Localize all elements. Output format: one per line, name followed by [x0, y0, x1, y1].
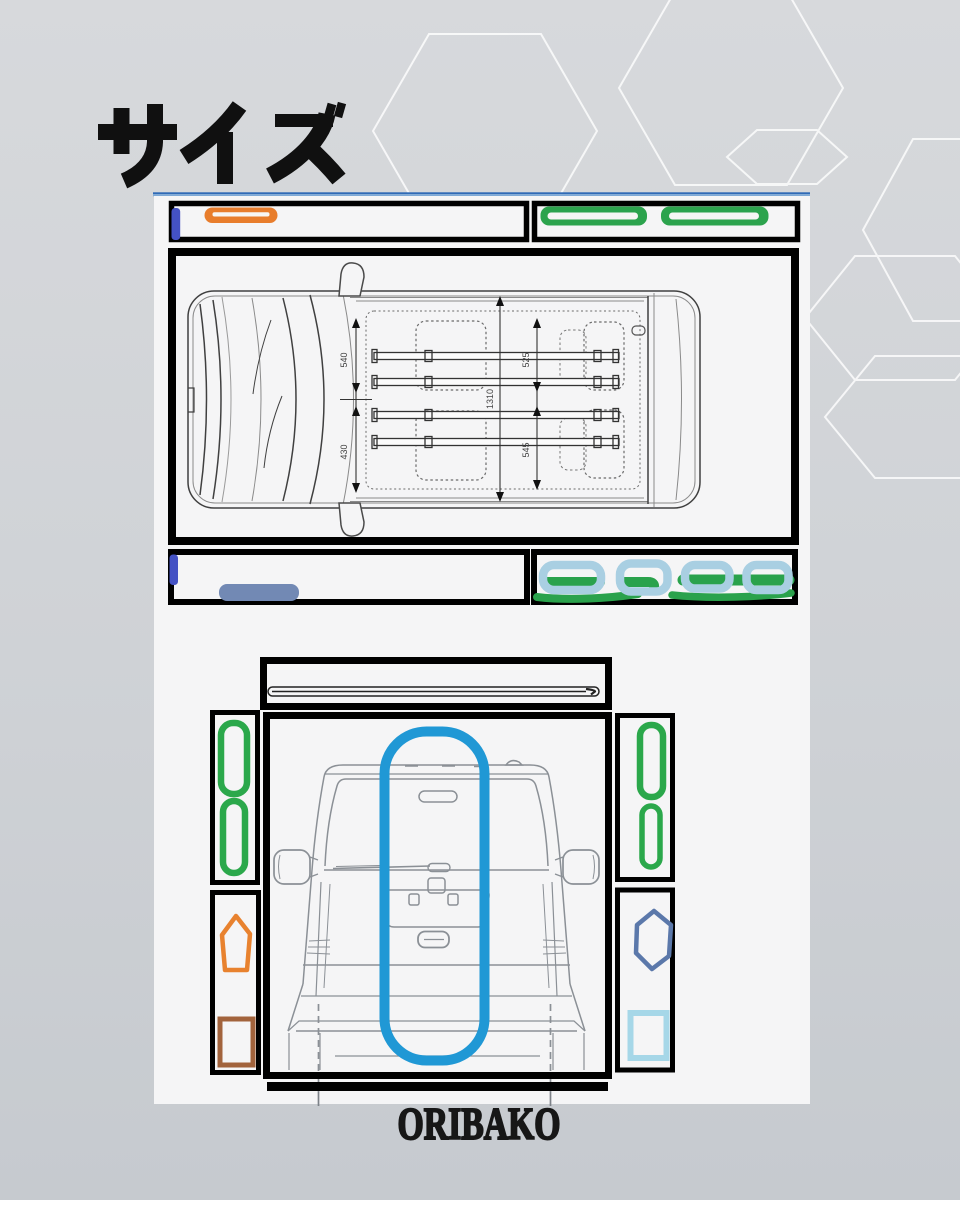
svg-text:540: 540	[339, 352, 349, 367]
svg-text:545: 545	[521, 442, 531, 457]
svg-text:ORIBAKO: ORIBAKO	[398, 1099, 561, 1149]
svg-text:1310: 1310	[485, 389, 495, 409]
svg-text:525: 525	[521, 352, 531, 367]
svg-text:430: 430	[339, 444, 349, 459]
